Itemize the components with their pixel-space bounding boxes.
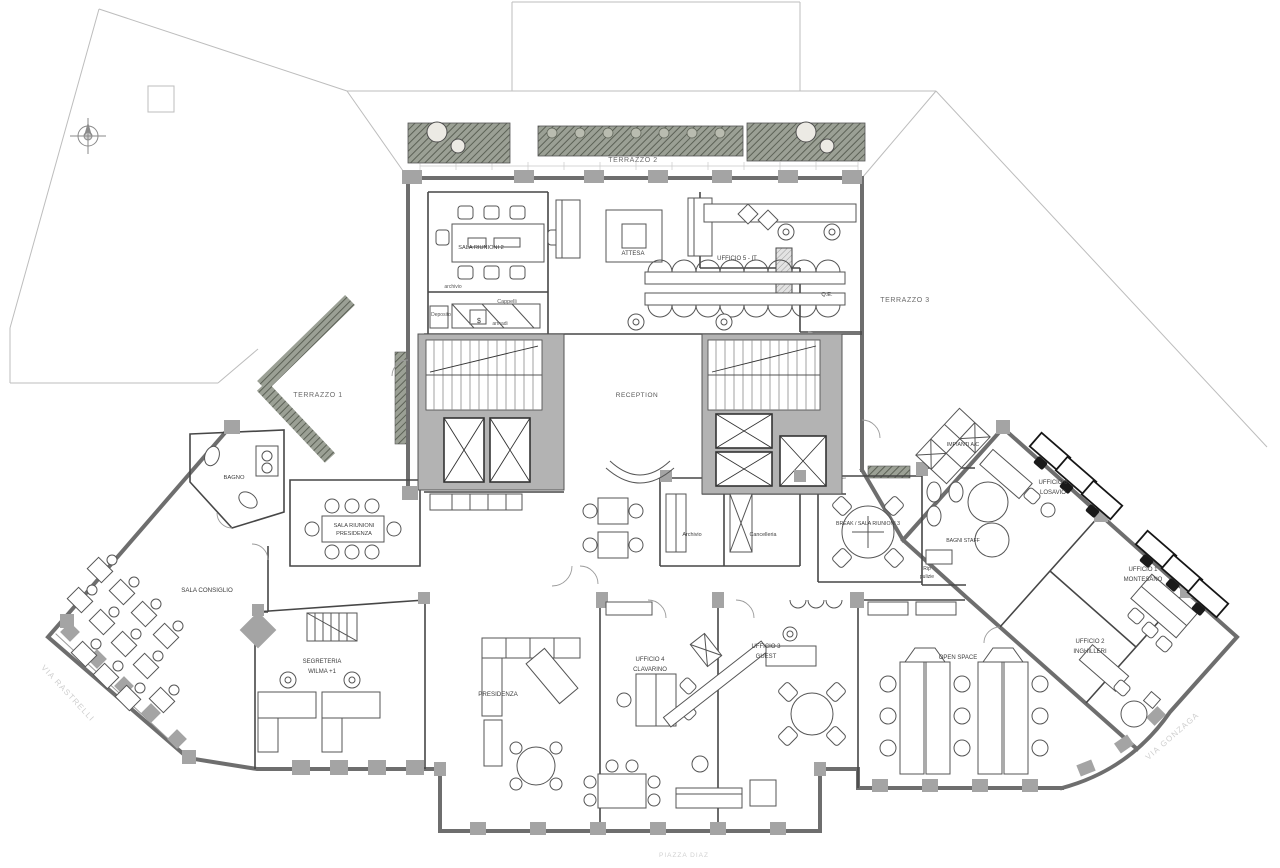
ufficio-3-furniture xyxy=(766,600,847,747)
ufficio-2-furniture xyxy=(1079,645,1160,727)
exterior-walls xyxy=(48,178,1237,831)
planter-strip xyxy=(395,352,407,444)
label-presidenza: PRESIDENZA xyxy=(478,691,518,698)
cafe-tables xyxy=(430,494,643,558)
label-sala-riunioni-presidenza-2: PRESIDENZA xyxy=(336,531,372,537)
open-space-benches xyxy=(868,602,1048,774)
label-ufficio-2-2: INGHILLERI xyxy=(1073,649,1107,655)
label-archivio-room: Archivio xyxy=(682,532,701,538)
label-sala-consiglio: SALA CONSIGLIO xyxy=(181,587,233,594)
attesa-scallop-wall xyxy=(628,260,845,330)
label-ufficio-4-2: CLAVARINO xyxy=(633,667,667,673)
label-ufficio-6-1: UFFICIO 6 xyxy=(1038,480,1068,486)
label-terrazzo-2: TERRAZZO 2 xyxy=(608,157,658,164)
label-archivio-dep: archivio xyxy=(444,284,461,290)
label-cancelleria: Cancelleria xyxy=(750,532,777,538)
label-deposito: Deposito xyxy=(431,312,451,318)
label-qe: Q.E. xyxy=(821,292,833,298)
bagni-staff-fixtures xyxy=(926,482,1009,564)
presidenza-furniture xyxy=(482,638,580,790)
label-bagni-staff: BAGNI STAFF xyxy=(946,538,980,544)
label-reception: RECEPTION xyxy=(616,392,658,399)
label-segreteria-1: SEGRETERIA xyxy=(303,659,342,665)
label-ufficio-5-it: UFFICIO 5 - IT xyxy=(717,256,757,262)
planter-strip-diagonal xyxy=(262,300,350,386)
conference-table-presidenza xyxy=(305,499,401,559)
label-sala-riunioni-2: SALA RIUNIONI 2 xyxy=(458,245,503,251)
label-impianti-ac: IMPIANTI A/C xyxy=(947,442,980,448)
label-cappelli: Cappelli xyxy=(497,299,516,305)
door-arcs xyxy=(217,332,1000,643)
ufficio-4-furniture xyxy=(606,602,769,727)
label-ufficio-1-2: MONTESANO xyxy=(1124,577,1163,583)
furniture-layer xyxy=(67,198,1228,808)
label-terrazzo-3: TERRAZZO 3 xyxy=(880,297,930,304)
archivio-shelving xyxy=(666,494,752,552)
stair-left xyxy=(426,340,542,410)
label-ufficio-6-2: LOSAVIO xyxy=(1040,490,1066,496)
segreteria-desks xyxy=(258,613,380,752)
label-terrazzo-1: TERRAZZO 1 xyxy=(293,392,343,399)
label-ufficio-1-1: UFFICIO 1 xyxy=(1128,567,1158,573)
ufficio-5-desks xyxy=(704,204,856,240)
label-ufficio-3-2: GUEST xyxy=(756,654,777,660)
conference-table-sala-riunioni-2 xyxy=(436,206,561,279)
label-ufficio-2-1: UFFICIO 2 xyxy=(1075,639,1105,645)
floor-plan-page: TERRAZZO 2TERRAZZO 1TERRAZZO 3SALA RIUNI… xyxy=(0,0,1280,868)
label-segreteria-2: WILMA +1 xyxy=(308,669,337,675)
label-armadi: armadi xyxy=(492,321,507,327)
label-attesa: ATTESA xyxy=(622,251,645,257)
label-ufficio-4-1: UFFICIO 4 xyxy=(635,657,665,663)
label-open-space: OPEN SPACE xyxy=(939,655,978,661)
label-piazza-diaz: PIAZZA DIAZ xyxy=(659,852,709,859)
core-right xyxy=(702,334,842,494)
label-rip-pulizie-1: Rip xyxy=(923,566,931,572)
label-sala-riunioni-presidenza-1: SALA RIUNIONI xyxy=(334,523,375,529)
core-left xyxy=(418,334,564,490)
stair-right xyxy=(708,340,820,410)
label-ufficio-3-1: UFFICIO 3 xyxy=(751,644,781,650)
label-break-sala-riunioni-3: BREAK / SALA RIUNIONI 3 xyxy=(836,521,900,527)
sala-consiglio-desks xyxy=(67,555,183,713)
break-room-table xyxy=(831,495,904,568)
label-rip-pulizie-2: pulizie xyxy=(920,574,934,580)
label-safe-symbol: $ xyxy=(477,318,481,325)
perimeter-workstations xyxy=(1023,433,1228,625)
floor-plan-canvas: TERRAZZO 2TERRAZZO 1TERRAZZO 3SALA RIUNI… xyxy=(0,0,1280,868)
label-bagno: BAGNO xyxy=(224,475,245,481)
compass-icon xyxy=(70,118,106,154)
bay-lounge-furniture xyxy=(584,756,776,808)
